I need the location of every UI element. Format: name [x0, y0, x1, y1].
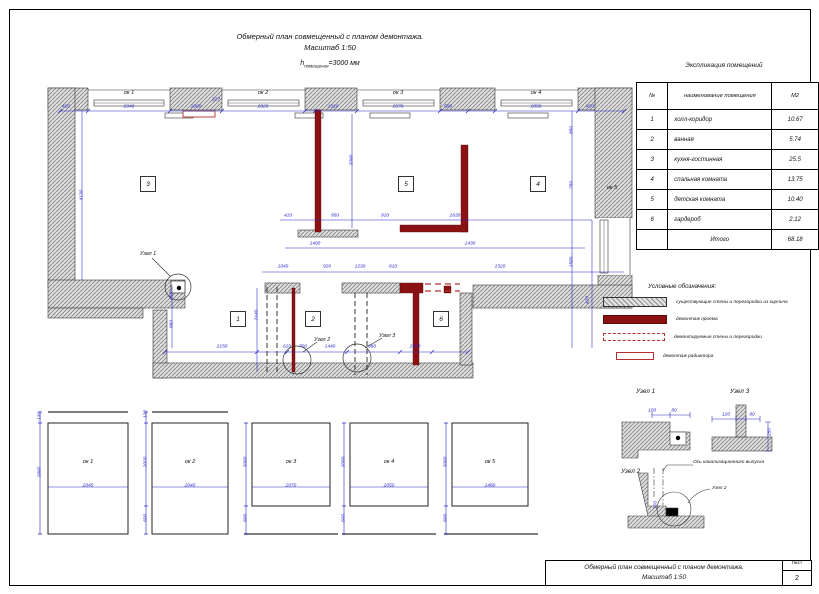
legend-item-radiator-demolition: демонтаж радиатора — [603, 352, 713, 360]
elevation-label-ok1: ок 1 — [83, 459, 93, 465]
row-name: гардероб — [668, 210, 772, 230]
drawing-title-line1: Обмерный план совмещенный с планом демон… — [160, 32, 500, 43]
room-number-6: 6 — [433, 311, 449, 327]
row-num: 1 — [637, 110, 668, 130]
row-area: 5.74 — [772, 130, 819, 150]
row-area: 25.5 — [772, 150, 819, 170]
explication-table: № наименование помещения М2 1 холл-корид… — [636, 82, 819, 250]
row-num — [637, 230, 668, 250]
plan-window-label-ok4: ок 4 — [531, 90, 541, 96]
legend-dashed-swatch — [603, 333, 665, 341]
table-row: 1 холл-коридор 10.67 — [637, 110, 819, 130]
table-row: 4 спальная комната 13.75 — [637, 170, 819, 190]
drawing-sheet: Обмерный план совмещенный с планом демон… — [0, 0, 819, 594]
row-area: 10.40 — [772, 190, 819, 210]
plan-window-label-ok3: ок 3 — [393, 90, 403, 96]
legend-radiator-swatch — [616, 352, 654, 360]
sheet-number: 2 — [783, 571, 811, 585]
floor-plan-drawing — [40, 80, 640, 390]
row-name: кухня-гостинная — [668, 150, 772, 170]
col-header-name: наименование помещения — [668, 83, 772, 110]
col-header-area: М2 — [772, 83, 819, 110]
legend-item-label: существующие стены и перегородки из кирп… — [676, 300, 788, 305]
elevation-label-ok3: ок 3 — [286, 459, 296, 465]
legend-item-label: демонтаж радиатора — [663, 354, 713, 359]
node-leaders — [654, 465, 710, 505]
detail-node1-title: Узел 1 — [636, 388, 655, 395]
row-name: спальная комната — [668, 170, 772, 190]
legend-item-label: демонтаж проема — [676, 317, 718, 322]
demolished-partition-red-dashed — [425, 284, 460, 291]
table-row: 2 ванная 5.74 — [637, 130, 819, 150]
row-name: Итого — [668, 230, 772, 250]
sewer-axis-label: Ось канализационного выпуска — [693, 460, 764, 465]
title-block-sheet-cell: Лист 2 — [783, 561, 811, 585]
room-number-4: 4 — [530, 176, 546, 192]
plan-node3-label: Узел 3 — [379, 333, 395, 339]
room-number-5: 5 — [398, 176, 414, 192]
drawing-title: Обмерный план совмещенный с планом демон… — [160, 32, 500, 54]
legend-title: Условные обозначения: — [648, 283, 808, 290]
row-area: 68.18 — [772, 230, 819, 250]
elevation-label-ok5: ок 5 — [485, 459, 495, 465]
node1-drawing — [622, 422, 690, 458]
node2-ref-label: Узел 2 — [712, 486, 726, 491]
row-name: ванная — [668, 130, 772, 150]
elevation-lines — [48, 412, 538, 534]
demolished-partition-dashed — [267, 287, 367, 375]
row-num: 2 — [637, 130, 668, 150]
sheet-caption: Лист — [783, 561, 811, 571]
h-value: =3000 мм — [329, 60, 360, 67]
room-number-2: 2 — [305, 311, 321, 327]
row-num: 5 — [637, 190, 668, 210]
radiator-demolition-symbol — [183, 111, 215, 117]
legend-red-swatch — [603, 315, 667, 324]
table-row: 5 детская комната 10.40 — [637, 190, 819, 210]
legend-item-demolished-partitions: демонтируемые стены и перегородки — [603, 333, 762, 341]
elevation-label-ok2: ок 2 — [185, 459, 195, 465]
explication-header-row: № наименование помещения М2 — [637, 83, 819, 110]
title-block: Обмерный план совмещенный с планом демон… — [545, 560, 812, 586]
window-frames — [88, 90, 632, 275]
elevation-dim-lines — [38, 412, 528, 534]
plan-window-label-ok5: ок 5 — [607, 185, 617, 191]
explication-title: Экспликация помещений — [636, 62, 812, 69]
room-number-1: 1 — [230, 311, 246, 327]
detail-node3-title: Узел 3 — [730, 388, 749, 395]
dimension-lines — [58, 109, 626, 372]
plan-node1-label: Узел 1 — [140, 251, 156, 257]
table-row: 3 кухня-гостинная 25.5 — [637, 150, 819, 170]
title-block-line1: Обмерный план совмещенный с планом демон… — [584, 563, 743, 573]
row-num: 6 — [637, 210, 668, 230]
row-name: холл-коридор — [668, 110, 772, 130]
plan-window-label-ok1: ок 1 — [124, 90, 134, 96]
h-subscript: помещения — [304, 63, 328, 68]
row-area: 2.12 — [772, 210, 819, 230]
plan-node2-label: Узел 2 — [314, 337, 330, 343]
title-block-line2: Масштаб 1:50 — [642, 573, 686, 583]
row-area: 13.75 — [772, 170, 819, 190]
table-row: 6 гардероб 2.12 — [637, 210, 819, 230]
legend-item-demolition-opening: демонтаж проема — [603, 315, 718, 324]
node2-drawing — [628, 473, 704, 528]
elevation-boxes — [48, 423, 528, 534]
ceiling-height-note: hпомещения=3000 мм — [160, 60, 500, 68]
table-total-row: Итого 68.18 — [637, 230, 819, 250]
window-elevations — [30, 405, 590, 545]
existing-walls — [48, 88, 632, 378]
room-number-3: 3 — [140, 176, 156, 192]
row-num: 4 — [637, 170, 668, 190]
drawing-title-line2: Масштаб 1:50 — [160, 43, 500, 54]
col-header-num: № — [637, 83, 668, 110]
plan-window-label-ok2: ок 2 — [258, 90, 268, 96]
legend-item-label: демонтируемые стены и перегородки — [674, 335, 762, 340]
legend-hatch-swatch — [603, 297, 667, 307]
elevation-label-ok4: ок 4 — [384, 459, 394, 465]
detail-node2-title: Узел 2 — [621, 468, 640, 475]
row-name: детская комната — [668, 190, 772, 210]
legend-item-existing-walls: существующие стены и перегородки из кирп… — [603, 297, 788, 307]
row-area: 10.67 — [772, 110, 819, 130]
title-block-main: Обмерный план совмещенный с планом демон… — [546, 561, 783, 585]
row-num: 3 — [637, 150, 668, 170]
node3-drawing — [712, 405, 772, 451]
